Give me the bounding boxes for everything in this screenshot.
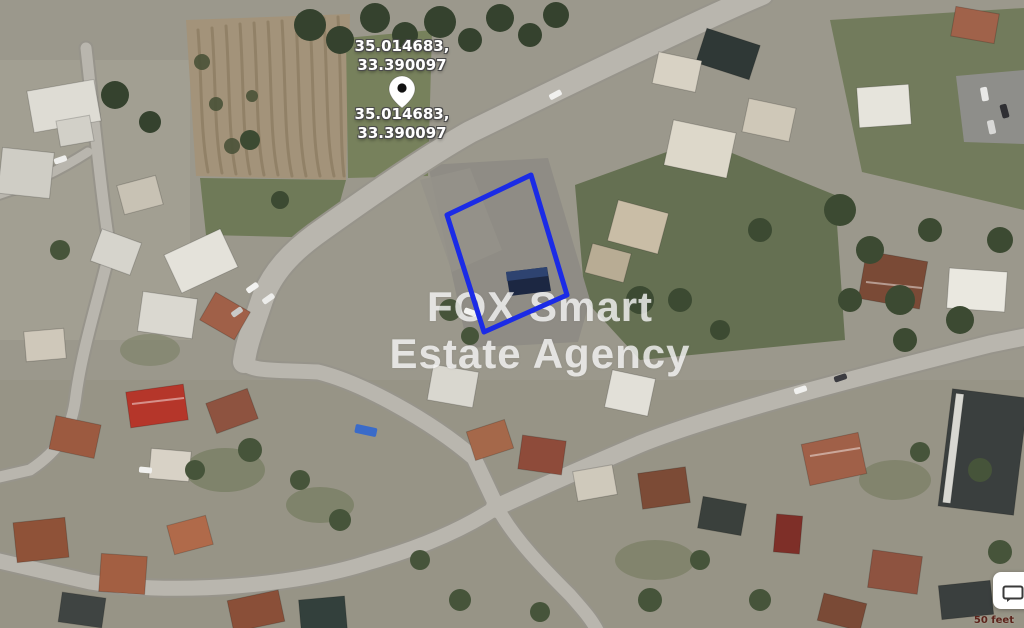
coordinates-line2: 33.390097	[320, 56, 484, 75]
map-viewport[interactable]: FOX Smart Estate Agency 35.014683, 33.39…	[0, 0, 1024, 628]
feedback-button[interactable]	[993, 572, 1024, 609]
watermark-line2: Estate Agency	[330, 330, 750, 377]
watermark-line1: FOX Smart	[330, 283, 750, 330]
coordinates-label-above: 35.014683, 33.390097	[320, 37, 484, 75]
speech-bubble-icon	[1002, 585, 1024, 603]
coordinates-label-below: 35.014683, 33.390097	[320, 105, 484, 143]
watermark: FOX Smart Estate Agency	[330, 283, 750, 377]
map-scale-label: 50 feet	[974, 615, 1014, 626]
coordinates-line2: 33.390097	[320, 124, 484, 143]
coordinates-line1: 35.014683,	[320, 105, 484, 124]
coordinates-line1: 35.014683,	[320, 37, 484, 56]
